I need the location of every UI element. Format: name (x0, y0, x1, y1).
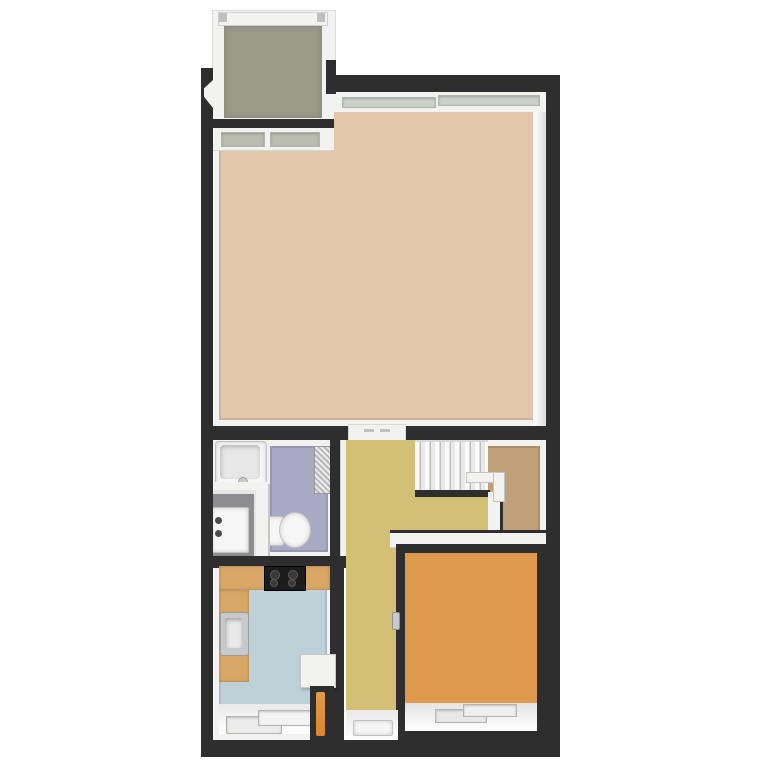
room-living (213, 127, 546, 426)
exterior-wall-top (326, 75, 560, 92)
stair-railing (493, 472, 505, 502)
living-right-wall-face (533, 94, 546, 426)
railing-post-icon (219, 13, 227, 22)
living-room-top-window (342, 97, 436, 108)
exterior-wall-left (201, 68, 213, 757)
toilet (279, 512, 311, 548)
kitchen-window (258, 710, 312, 726)
washer-dial-icon (215, 517, 222, 524)
room-hallway (346, 440, 400, 740)
bedroom-door-handle (392, 612, 400, 630)
entry-door (353, 720, 393, 736)
balcony-railing (218, 12, 328, 26)
room-balcony (224, 26, 322, 118)
washer-dial-icon (215, 530, 222, 537)
exterior-wall-right (546, 75, 560, 757)
burner-icon (270, 579, 278, 587)
utility-right-wall (256, 484, 270, 560)
living-room-top-window (438, 95, 540, 106)
balcony-parapet-wall (213, 119, 334, 128)
boiler-pipe (316, 692, 325, 736)
staircase (415, 440, 488, 494)
bathtub-basin (220, 445, 260, 479)
side-table (300, 654, 336, 688)
floor-plan (0, 0, 768, 768)
bedroom-window (463, 704, 517, 717)
door-track-icon (380, 429, 390, 432)
room-bedroom (396, 544, 546, 740)
door-track-icon (364, 429, 374, 432)
stair-edge-wall (415, 490, 490, 497)
cooktop (264, 566, 306, 591)
railing-post-icon (317, 13, 325, 22)
burner-icon (288, 579, 296, 587)
sink-basin (225, 618, 242, 648)
balcony-door (221, 132, 265, 147)
exterior-wall-bottom (201, 740, 560, 757)
kitchen-sink (220, 612, 249, 656)
balcony-door-window (270, 132, 320, 147)
bathroom-hall-wall (330, 440, 340, 558)
